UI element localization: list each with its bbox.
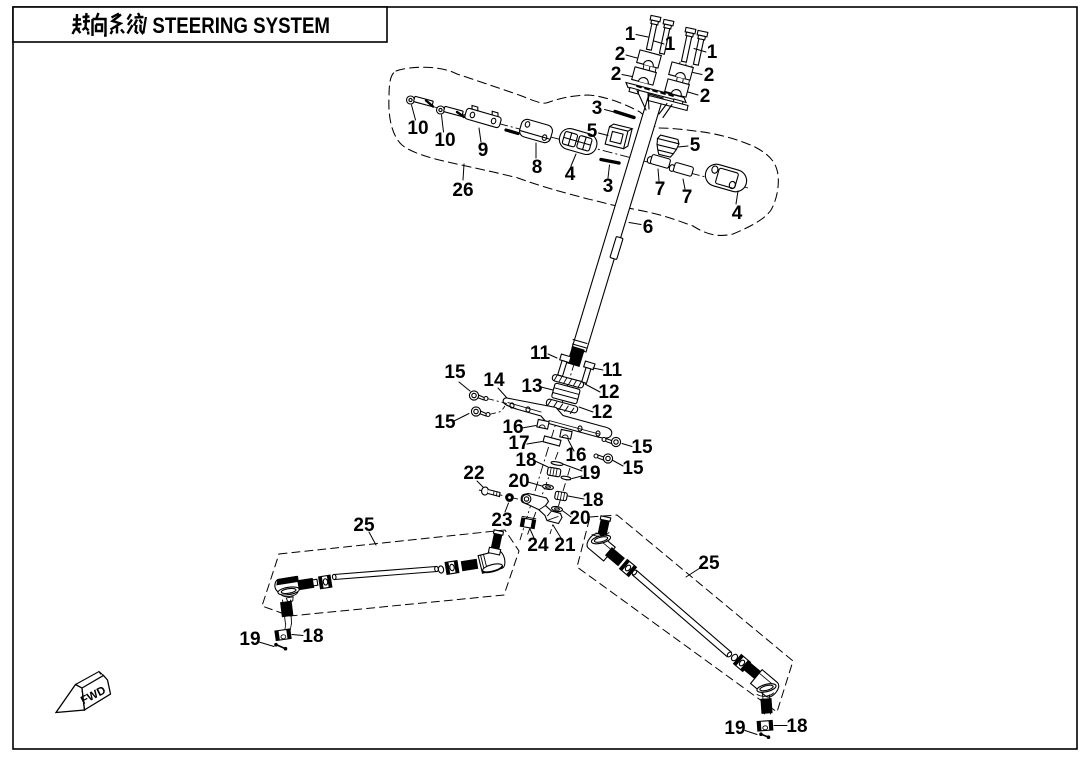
- svg-text:21: 21: [554, 535, 576, 556]
- svg-text:6: 6: [643, 217, 654, 238]
- svg-text:19: 19: [239, 629, 260, 650]
- svg-text:4: 4: [732, 203, 743, 224]
- svg-text:24: 24: [527, 535, 549, 556]
- svg-text:2: 2: [611, 64, 622, 85]
- svg-text:14: 14: [483, 370, 505, 391]
- svg-text:2: 2: [700, 86, 711, 107]
- svg-text:18: 18: [302, 626, 323, 647]
- svg-text:12: 12: [591, 402, 612, 423]
- svg-text:10: 10: [434, 130, 455, 151]
- svg-text:5: 5: [587, 121, 598, 142]
- svg-text:22: 22: [463, 463, 484, 484]
- svg-text:13: 13: [521, 376, 542, 397]
- svg-text:20: 20: [508, 471, 529, 492]
- svg-text:9: 9: [478, 140, 489, 161]
- svg-text:8: 8: [532, 157, 543, 178]
- svg-text:19: 19: [579, 463, 600, 484]
- svg-text:11: 11: [530, 343, 551, 364]
- svg-text:11: 11: [602, 360, 623, 381]
- svg-text:1: 1: [625, 24, 636, 45]
- svg-text:15: 15: [434, 412, 456, 433]
- svg-text:3: 3: [592, 98, 603, 119]
- svg-text:12: 12: [598, 382, 619, 403]
- svg-text:19: 19: [724, 718, 745, 739]
- svg-text:2: 2: [704, 65, 715, 86]
- svg-text:7: 7: [682, 187, 693, 208]
- svg-text:15: 15: [631, 437, 653, 458]
- svg-text:10: 10: [407, 118, 428, 139]
- svg-text:18: 18: [786, 716, 807, 737]
- svg-text:3: 3: [603, 176, 614, 197]
- svg-text:25: 25: [353, 515, 375, 536]
- svg-text:15: 15: [444, 362, 466, 383]
- svg-text:2: 2: [615, 44, 626, 65]
- svg-text:15: 15: [622, 458, 644, 479]
- svg-text:1: 1: [707, 42, 718, 63]
- svg-text:23: 23: [491, 510, 512, 531]
- svg-text:25: 25: [698, 553, 720, 574]
- svg-text:1: 1: [665, 34, 676, 55]
- svg-text:7: 7: [655, 179, 666, 200]
- svg-text:26: 26: [452, 180, 473, 201]
- svg-text:/ STEERING SYSTEM: / STEERING SYSTEM: [142, 13, 330, 38]
- svg-text:18: 18: [515, 450, 536, 471]
- svg-text:5: 5: [690, 135, 701, 156]
- svg-text:4: 4: [565, 164, 576, 185]
